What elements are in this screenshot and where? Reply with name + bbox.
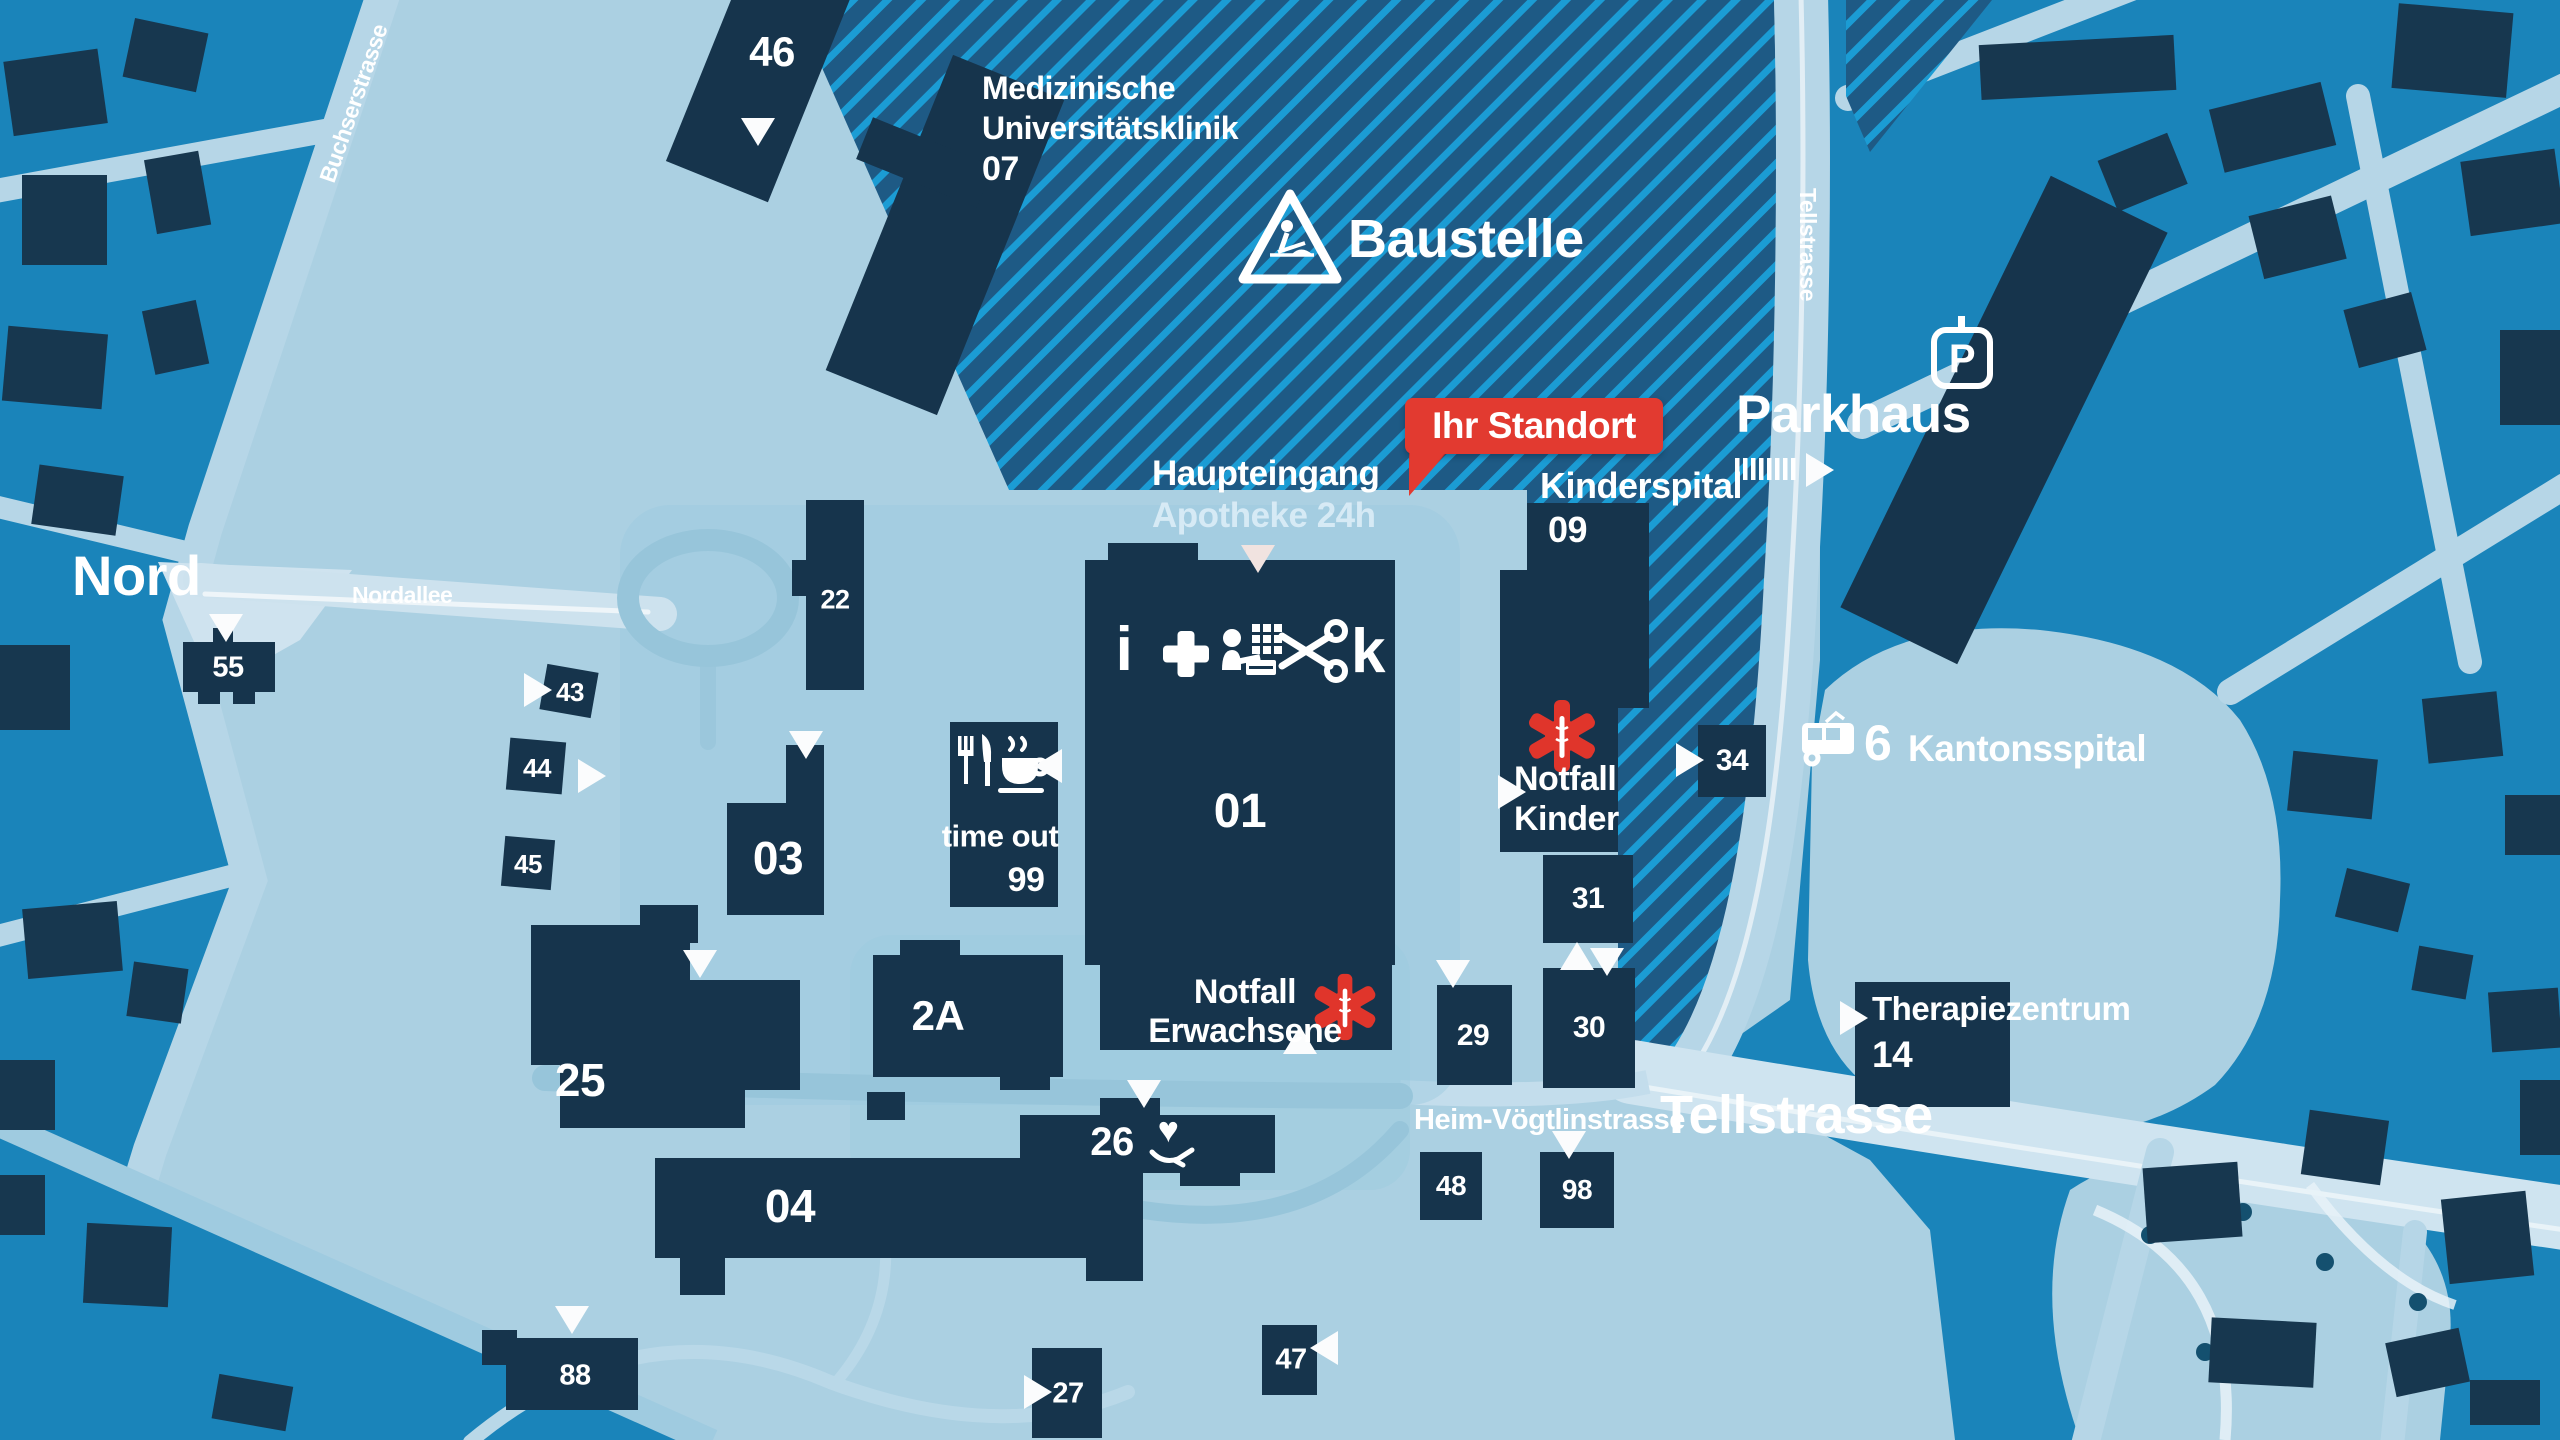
building-55-label: 55 <box>212 654 243 683</box>
building-04-label: 04 <box>765 1183 815 1229</box>
building-09-label: 09 <box>1548 512 1587 548</box>
apotheke-label: Apotheke 24h <box>1152 498 1376 533</box>
building-03-label: 03 <box>753 835 803 881</box>
building-27-label: 27 <box>1052 1380 1083 1409</box>
building-46-label: 46 <box>749 31 795 73</box>
street-nord: Nord <box>72 548 201 604</box>
building-88-label: 88 <box>559 1362 590 1391</box>
haupteingang-label: Haupteingang <box>1152 456 1379 491</box>
street-heim-voegtlinstrasse: Heim-Vögtlinstrasse <box>1414 1106 1685 1135</box>
building-31-label: 31 <box>1572 884 1604 914</box>
street-tellstrasse-main: Tellstrasse <box>1660 1088 1933 1142</box>
building-14-label: 14 <box>1872 1036 1912 1073</box>
building-01-label: 01 <box>1214 788 1266 836</box>
hospital-campus-map: Buchserstrasse Nord Nordallee Tellstrass… <box>0 0 2560 1440</box>
notfall-kinder-label-line1: Notfall <box>1514 762 1616 796</box>
baustelle-label: Baustelle <box>1348 212 1584 266</box>
time-out-label: time out <box>942 821 1059 852</box>
building-2a-label: 2A <box>912 995 965 1037</box>
med-klinik-label-line2: Universitätsklinik <box>982 112 1238 144</box>
building-98-label: 98 <box>1562 1176 1592 1204</box>
building-25-label: 25 <box>555 1057 605 1103</box>
info-desk-icon: i <box>1116 619 1133 681</box>
notfall-erwachsene-label-line2: Erwachsene <box>1148 1014 1341 1048</box>
building-22-label: 22 <box>820 587 849 614</box>
parkhaus-label: Parkhaus <box>1736 388 1971 441</box>
building-48-label: 48 <box>1436 1172 1466 1200</box>
building-44-label: 44 <box>523 755 551 781</box>
notfall-kinder-label-line2: Kinder <box>1514 802 1619 836</box>
building-30-label: 30 <box>1573 1013 1605 1043</box>
notfall-erwachsene-label-line1: Notfall <box>1194 975 1296 1009</box>
building-29-label: 29 <box>1457 1021 1489 1051</box>
street-tellstrasse-top: Tellstrasse <box>1796 188 1819 301</box>
kiosk-icon: k <box>1351 621 1385 683</box>
building-43-label: 43 <box>556 679 584 705</box>
med-klinik-label-line1: Medizinische <box>982 72 1175 104</box>
heart-icon: ♥ <box>1158 1112 1179 1148</box>
building-99-label: 99 <box>1008 863 1045 897</box>
street-nordallee: Nordallee <box>352 584 452 607</box>
parking-letter: P <box>1949 339 1975 379</box>
building-26-label: 26 <box>1090 1122 1134 1162</box>
kantonsspital-stop-label: Kantonsspital <box>1908 730 2146 767</box>
building-45-label: 45 <box>514 851 542 877</box>
kinderspital-label: Kinderspital <box>1540 468 1742 504</box>
map-graphics <box>0 0 2560 1440</box>
building-47-label: 47 <box>1275 1346 1306 1375</box>
building-2a-shape <box>873 955 1063 1077</box>
tram-line-number: 6 <box>1864 718 1891 768</box>
building-34-label: 34 <box>1716 746 1748 776</box>
your-location-label: Ihr Standort <box>1405 398 1663 454</box>
therapiezentrum-label: Therapiezentrum <box>1872 992 2130 1025</box>
building-26-shape <box>1020 1115 1275 1173</box>
building-07-label: 07 <box>982 152 1019 186</box>
your-location-callout: Ihr Standort <box>1405 398 1663 454</box>
